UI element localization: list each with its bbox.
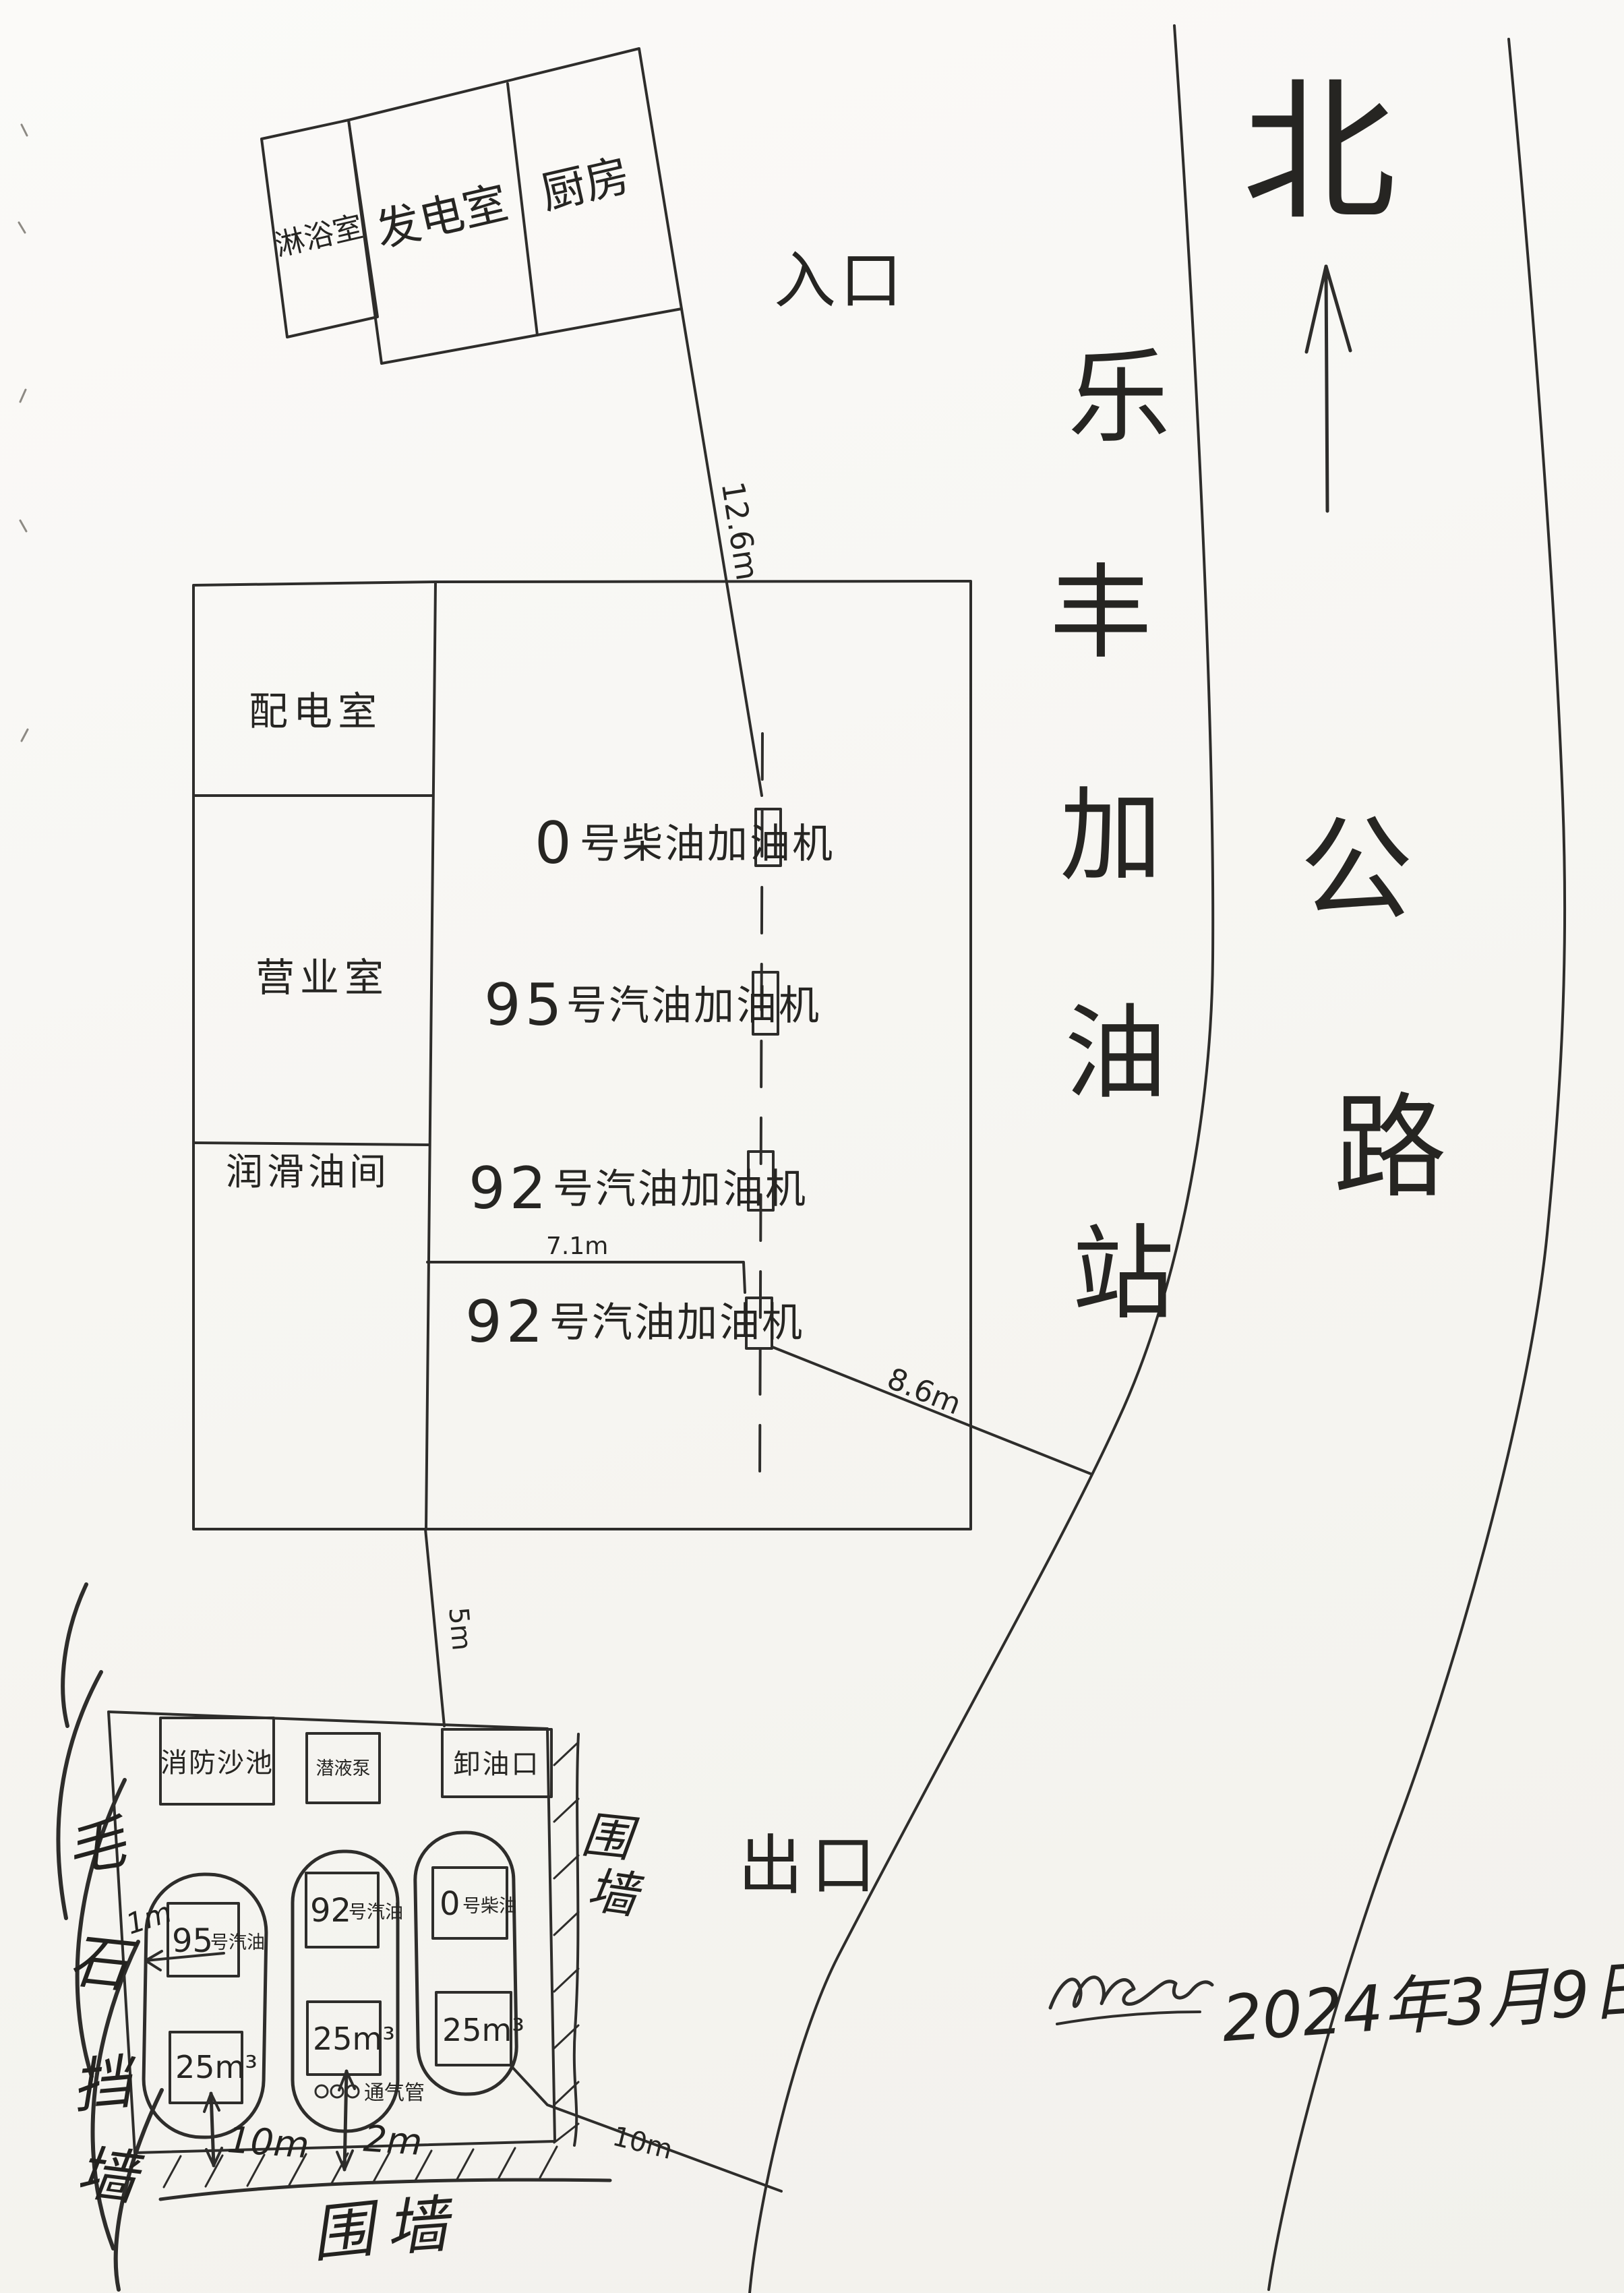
station-name-char-2: 加 (1060, 776, 1162, 895)
station-name-char-0: 乐 (1068, 338, 1170, 457)
fire-sand-pool-label: 消防沙池 (160, 1748, 274, 1779)
auxiliary-building: 淋浴室 发电室 厨房 (262, 49, 682, 363)
paper-marks (19, 125, 28, 741)
wall-right-char-1: 墙 (583, 1861, 646, 1926)
exit-label: 出口 (738, 1828, 884, 1903)
signature-date: 2024年3月9日 (1050, 1953, 1624, 2057)
dispenser-label-3: 号汽油加油机 (549, 1299, 804, 1346)
tank-95-volume: 25m³ (175, 2049, 258, 2085)
right-wall (554, 1734, 578, 2145)
tank-92-grade: 号汽油 (349, 1902, 403, 1923)
tank-0-volume: 25m³ (442, 2012, 524, 2048)
dispenser-label-0: 号柴油加油机 (580, 821, 835, 868)
dim-10m-road-label: 10m (609, 2121, 675, 2166)
rooms-column-wall (426, 582, 435, 1529)
station-name: 乐 丰 加 油 站 (1050, 338, 1174, 1334)
tank-0-grade: 号柴油 (462, 1896, 517, 1917)
station-building: 配电室 营业室 润滑油间 (193, 581, 971, 1529)
date-label: 2024年3月9日 (1220, 1953, 1624, 2057)
wall-bottom-label: 围 墙 (308, 2188, 457, 2271)
dim-8-6m-label: 8.6m (882, 1361, 966, 1422)
road-char-1: 路 (1333, 1081, 1447, 1214)
north-label: 北 (1242, 63, 1396, 242)
wall-right-char-0: 围 (579, 1806, 641, 1869)
scanned-site-plan: 淋浴室 发电室 厨房 入口 12.6m 配电室 营业室 润滑油间 0 号柴油加油… (0, 0, 1624, 2293)
dim-7-1m: 7.1m (427, 1232, 745, 1292)
dispenser-num-2: 92 (469, 1155, 550, 1222)
tank-92-num: 92 (310, 1892, 351, 1930)
tank-farm: 消防沙池 潜液泵 卸油口 95 号汽油 25m³ 92 号汽油 25m³ 0 号… (109, 1712, 646, 2271)
room-label-business: 营业室 (255, 955, 389, 1001)
tank-pit-3 (415, 1832, 518, 2095)
room-label-power: 配电室 (249, 688, 382, 734)
room-divider-2 (194, 1143, 429, 1145)
wall-bottom-char-1: 墙 (383, 2188, 456, 2265)
room-label-shower: 淋浴室 (272, 210, 366, 263)
tank-92-volume: 25m³ (313, 2021, 395, 2057)
room-label-lubricant: 润滑油间 (226, 1150, 390, 1193)
retaining-wall-char-0: 毛 (61, 1807, 131, 1884)
signature-scribble (1050, 1977, 1212, 2008)
dim-10m-road: 10m (511, 2066, 781, 2191)
dispenser-num-3: 92 (465, 1288, 547, 1356)
dispenser-island: 0 号柴油加油机 95 号汽油加油机 92 号汽油加油机 92 号汽油加油机 (465, 734, 835, 1481)
station-name-char-3: 油 (1064, 994, 1167, 1113)
vent-pipe: 通气管 (315, 2081, 425, 2105)
dim-10m-pit-label: 10m (226, 2118, 310, 2166)
station-name-char-4: 站 (1072, 1214, 1174, 1334)
wall-bottom-char-0: 围 (308, 2192, 386, 2271)
north-arrow-icon (1306, 266, 1350, 511)
dim-8-6m: 8.6m (773, 1347, 1091, 1474)
dim-2m-vent-label: 2m (362, 2117, 423, 2164)
aux-room-divider (508, 84, 537, 335)
dim-5m-label: 5m (442, 1606, 477, 1652)
dim-7-1m-label: 7.1m (546, 1232, 608, 1260)
room-label-kitchen: 厨房 (536, 149, 634, 220)
station-name-char-1: 丰 (1050, 554, 1152, 673)
pump-label: 潜液泵 (316, 1758, 371, 1779)
entrance-label: 入口 (774, 245, 906, 317)
retaining-wall-char-3: 墙 (73, 2137, 147, 2214)
road-char-0: 公 (1300, 804, 1413, 936)
dim-5m: 5m (425, 1529, 477, 1726)
dispenser-label-2: 号汽油加油机 (553, 1166, 808, 1213)
tank-0-num: 0 (440, 1885, 460, 1923)
dim-12-6m-label: 12.6m (715, 479, 766, 583)
unloading-port-label: 卸油口 (454, 1749, 541, 1780)
dispenser-num-1: 95 (484, 972, 566, 1039)
tank-95-grade: 号汽油 (210, 1932, 265, 1953)
wall-right-label: 围 墙 (579, 1806, 646, 1926)
compass: 北 (1242, 63, 1396, 511)
dispenser-label-1: 号汽油加油机 (566, 982, 821, 1030)
building-to-island-line: 12.6m (682, 309, 766, 796)
room-label-generator: 发电室 (371, 177, 512, 258)
dispenser-num-0: 0 (535, 810, 572, 877)
vent-pipe-label: 通气管 (364, 2081, 425, 2105)
